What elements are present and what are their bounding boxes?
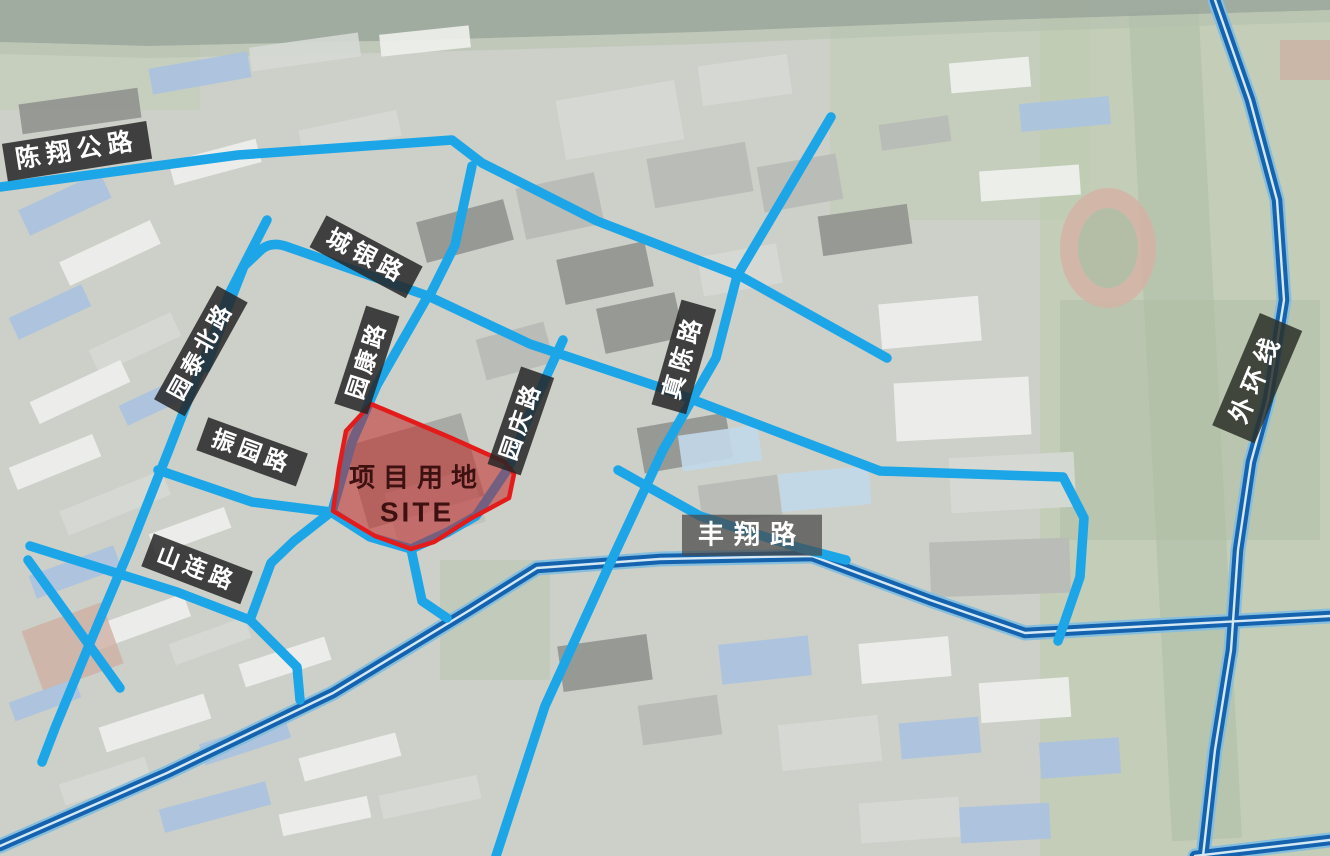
- white-haze: [0, 0, 1330, 856]
- site-label-chinese: 项目用地: [349, 458, 485, 495]
- site-label: 项目用地 SITE: [349, 458, 485, 529]
- map-canvas: 陈翔公路 城银路 园泰北路 园康路 园庆路 真陈路 振园路 山连路 丰翔路 外环…: [0, 0, 1330, 856]
- road-label-fengxiang: 丰翔路: [682, 515, 822, 556]
- satellite-map-svg: [0, 0, 1330, 856]
- site-label-english: SITE: [349, 497, 485, 529]
